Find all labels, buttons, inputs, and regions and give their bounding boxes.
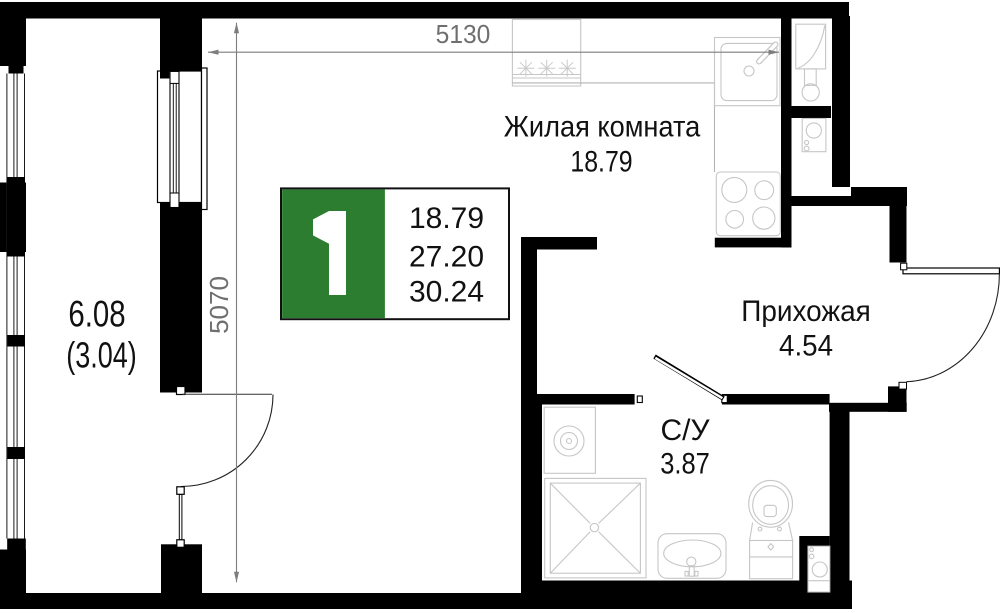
svg-text:(3.04): (3.04) (66, 335, 136, 376)
svg-text:5130: 5130 (436, 20, 491, 49)
svg-text:5070: 5070 (204, 276, 234, 334)
svg-text:18.79: 18.79 (570, 144, 632, 178)
svg-text:3.87: 3.87 (660, 446, 710, 479)
svg-text:4.54: 4.54 (779, 329, 833, 362)
svg-text:Жилая комната: Жилая комната (504, 110, 701, 144)
svg-text:18.79: 18.79 (409, 202, 484, 235)
svg-text:6.08: 6.08 (68, 294, 125, 335)
svg-text:27.20: 27.20 (409, 241, 484, 274)
svg-text:Прихожая: Прихожая (741, 295, 871, 328)
svg-text:С/У: С/У (660, 414, 710, 447)
svg-text:30.24: 30.24 (409, 275, 484, 308)
